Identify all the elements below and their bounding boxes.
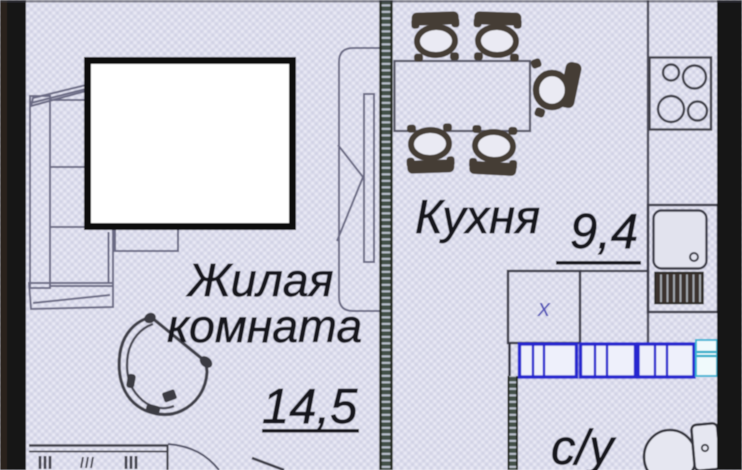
svg-text:комната: комната (167, 300, 362, 352)
svg-text:14,5: 14,5 (262, 380, 358, 434)
svg-text:9,4: 9,4 (570, 205, 638, 259)
svg-text:Жилая: Жилая (186, 254, 333, 306)
svg-text:с/у: с/у (551, 421, 616, 470)
svg-text:Кухня: Кухня (415, 190, 540, 243)
svg-text:x: x (537, 295, 551, 322)
